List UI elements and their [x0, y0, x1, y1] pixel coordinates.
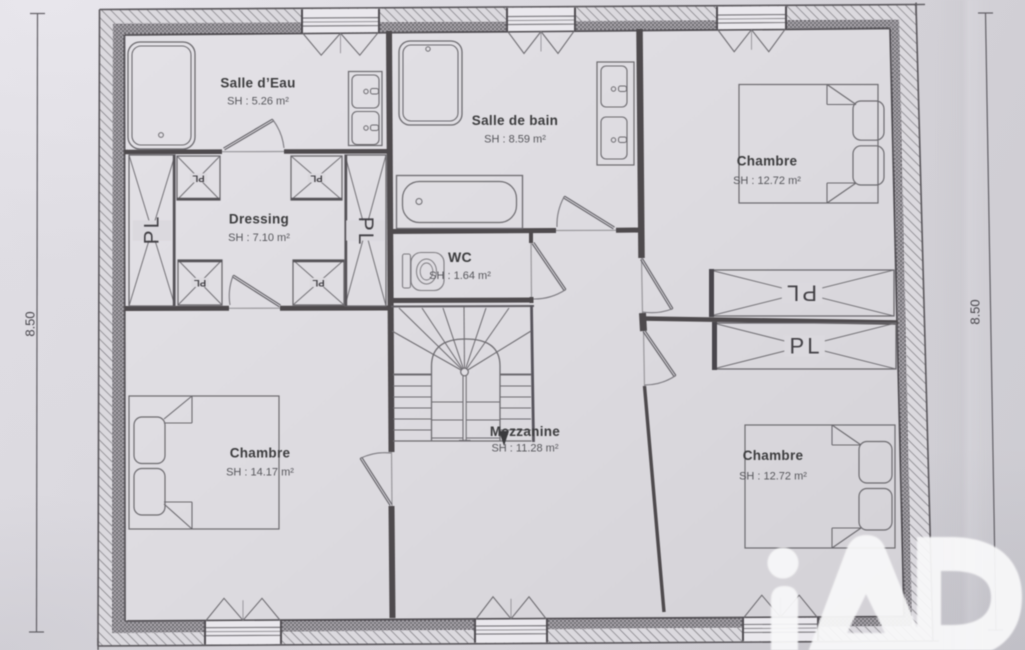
svg-text:Chambre: Chambre — [230, 446, 291, 461]
svg-text:SH : 7.10 m²: SH : 7.10 m² — [228, 232, 290, 244]
svg-text:Chambre: Chambre — [743, 448, 804, 463]
svg-text:SH : 11.28 m²: SH : 11.28 m² — [491, 443, 558, 455]
svg-text:PL: PL — [141, 215, 164, 245]
svg-text:WC: WC — [448, 249, 472, 265]
svg-text:PL: PL — [312, 277, 324, 288]
svg-text:Salle de bain: Salle de bain — [472, 113, 558, 128]
svg-text:SH : 12.72 m²: SH : 12.72 m² — [733, 175, 801, 187]
svg-text:8.50: 8.50 — [968, 299, 983, 324]
svg-text:PL: PL — [790, 334, 823, 359]
svg-text:PL: PL — [784, 281, 817, 306]
svg-text:SH : 14.17 m²: SH : 14.17 m² — [226, 467, 294, 479]
svg-text:SH : 5.26 m²: SH : 5.26 m² — [227, 96, 289, 108]
svg-text:PL: PL — [354, 217, 377, 247]
svg-text:SH : 8.59 m²: SH : 8.59 m² — [484, 134, 546, 146]
svg-text:Chambre: Chambre — [737, 154, 798, 169]
svg-text:PL: PL — [310, 173, 322, 184]
svg-text:SH : 1.64 m²: SH : 1.64 m² — [429, 270, 491, 282]
svg-text:Salle d’Eau: Salle d’Eau — [220, 76, 295, 91]
svg-text:PL: PL — [192, 173, 204, 184]
svg-text:SH : 12.72 m²: SH : 12.72 m² — [739, 471, 807, 483]
svg-text:8.50: 8.50 — [23, 311, 38, 336]
svg-text:Dressing: Dressing — [229, 212, 289, 227]
svg-text:PL: PL — [194, 277, 206, 288]
